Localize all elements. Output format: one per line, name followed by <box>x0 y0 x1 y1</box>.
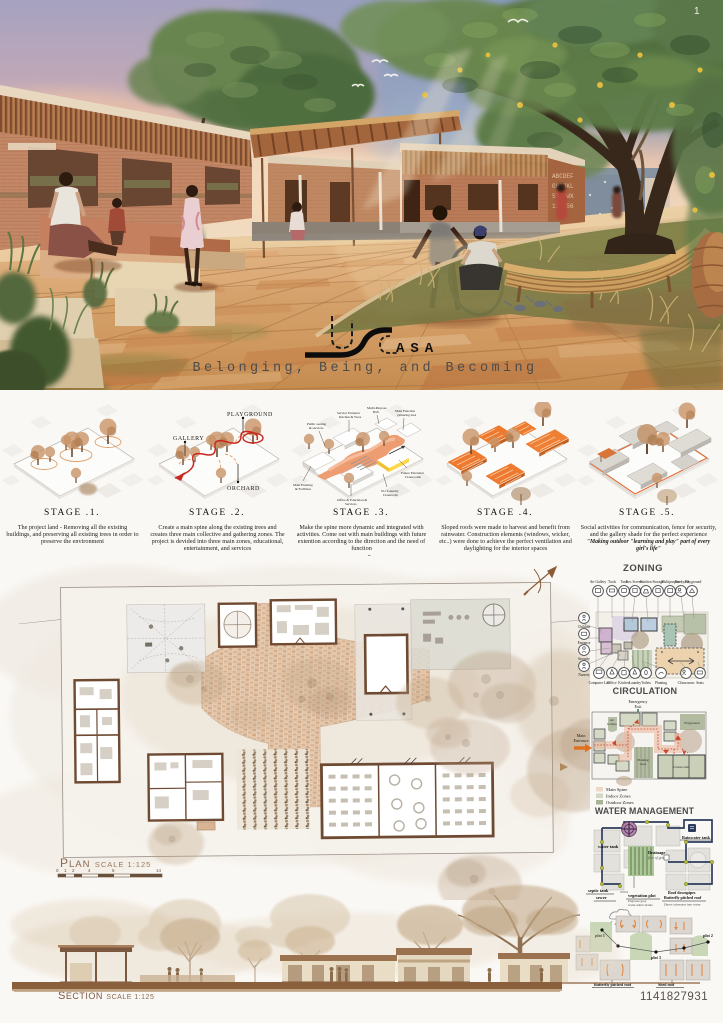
svg-text:ORCHARD: ORCHARD <box>227 486 260 492</box>
svg-text:GALLERY: GALLERY <box>173 436 204 442</box>
svg-text:Classroom: Classroom <box>383 493 398 497</box>
svg-text:Playground: Playground <box>685 580 702 584</box>
svg-text:Art Gallery: Art Gallery <box>590 580 607 584</box>
svg-text:Tools: Tools <box>608 580 617 584</box>
svg-text:Classrooms: Classrooms <box>673 765 689 769</box>
svg-text:Services: Services <box>345 502 357 505</box>
svg-text:Kitchen & Store: Kitchen & Store <box>339 415 362 419</box>
svg-text:Planting: Planting <box>655 681 667 685</box>
svg-text:Office: Office <box>607 681 617 685</box>
svg-text:PLAYGROUND: PLAYGROUND <box>227 412 273 418</box>
svg-text:Outdoor Zones: Outdoor Zones <box>606 800 634 805</box>
svg-text:ASA: ASA <box>396 341 439 357</box>
svg-text:Belonging, Being, and Becoming: Belonging, Being, and Becoming <box>192 361 537 376</box>
svg-text:ABCDEF: ABCDEF <box>552 173 574 180</box>
svg-text:14: 14 <box>156 868 162 873</box>
svg-text:water tank: water tank <box>598 844 619 849</box>
svg-text:Kitchen: Kitchen <box>640 580 652 584</box>
svg-text:Toilets: Toilets <box>641 681 651 685</box>
svg-text:& Facilities: & Facilities <box>295 487 312 491</box>
svg-text:Hall: Hall <box>373 410 379 414</box>
svg-text:Area: Area <box>640 762 647 766</box>
svg-text:Playground: Playground <box>684 721 700 725</box>
svg-text:gathering area: gathering area <box>397 413 417 417</box>
svg-text:Indoor Zones: Indoor Zones <box>606 794 631 799</box>
svg-text:Gallery: Gallery <box>607 722 617 726</box>
svg-text:Laundry: Laundry <box>629 681 641 685</box>
svg-text:Seats: Seats <box>696 681 704 685</box>
svg-text:Drainage: Drainage <box>648 850 665 855</box>
svg-text:Rainwater tank: Rainwater tank <box>682 835 711 840</box>
svg-text:Classrooms: Classrooms <box>405 475 422 479</box>
svg-text:Exit: Exit <box>635 704 643 709</box>
svg-text:Entrance: Entrance <box>574 738 589 743</box>
svg-text:& services: & services <box>309 426 324 430</box>
svg-text:free of grit: free of grit <box>648 856 665 860</box>
svg-text:1: 1 <box>694 6 700 17</box>
svg-text:Nursery: Nursery <box>578 673 590 677</box>
svg-text:Classrooms: Classrooms <box>678 681 695 685</box>
svg-text:Main Spine: Main Spine <box>606 787 627 792</box>
